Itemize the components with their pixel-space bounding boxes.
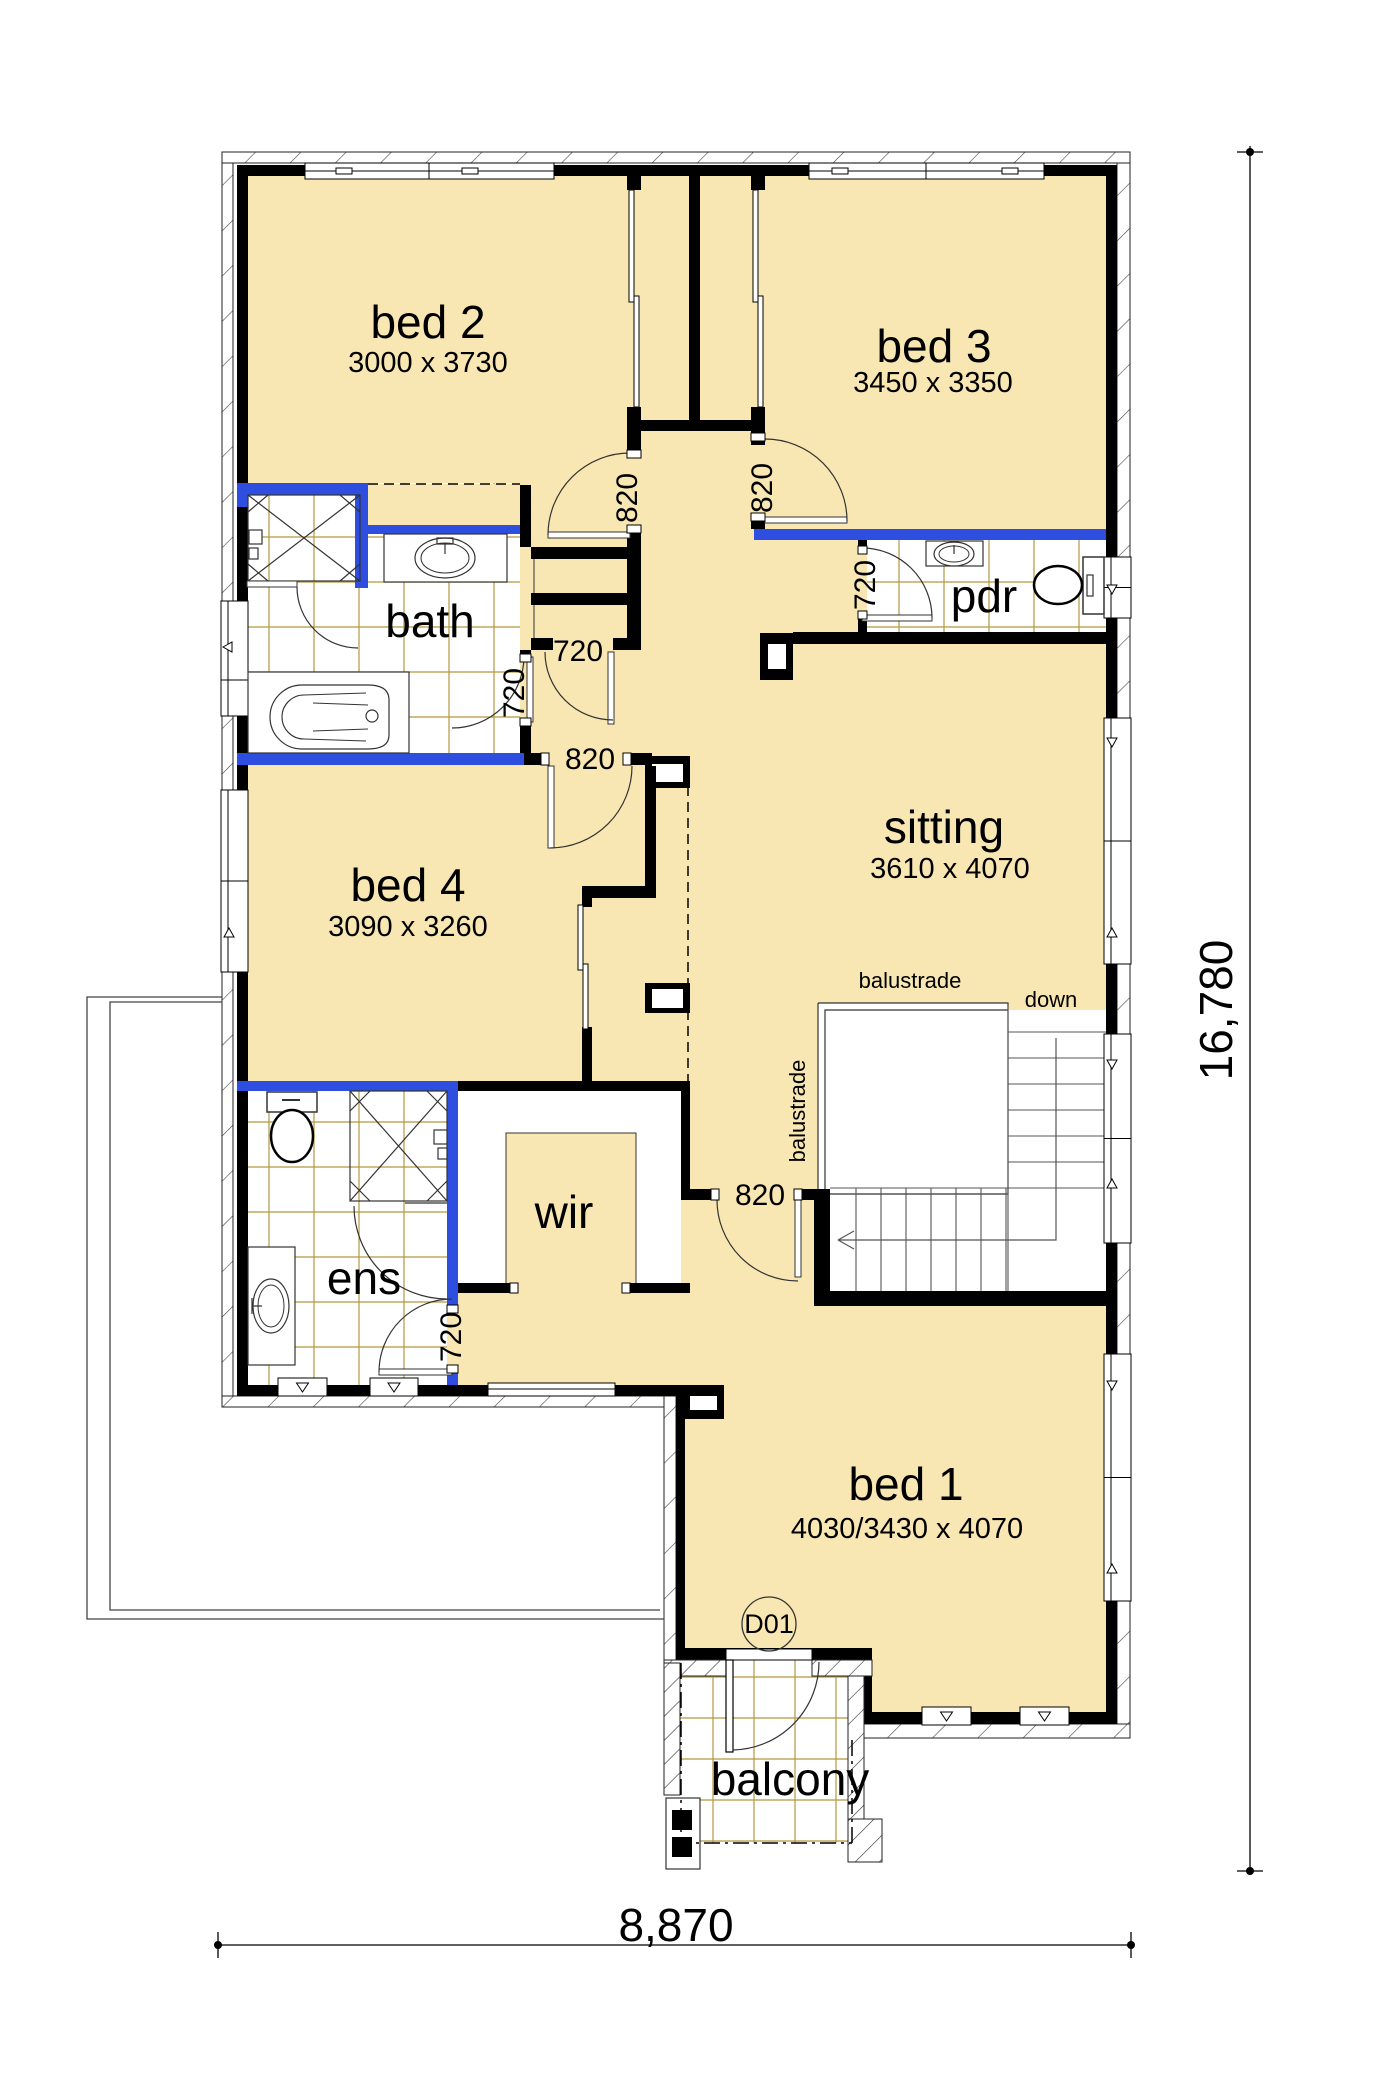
svg-text:bath: bath (385, 595, 475, 647)
svg-text:down: down (1025, 987, 1078, 1012)
svg-text:16,780: 16,780 (1190, 940, 1242, 1081)
svg-text:wir: wir (534, 1186, 594, 1238)
svg-text:bed 1: bed 1 (848, 1458, 963, 1510)
svg-text:3610 x 4070: 3610 x 4070 (870, 853, 1030, 885)
svg-text:balcony: balcony (711, 1753, 870, 1805)
svg-text:bed 3: bed 3 (876, 320, 991, 372)
svg-text:3000 x 3730: 3000 x 3730 (348, 347, 508, 379)
svg-text:balustrade: balustrade (785, 1060, 810, 1163)
svg-text:D01: D01 (744, 1609, 794, 1639)
svg-text:820: 820 (735, 1179, 785, 1212)
svg-text:4030/3430 x 4070: 4030/3430 x 4070 (791, 1513, 1023, 1545)
svg-text:sitting: sitting (884, 801, 1004, 853)
svg-text:820: 820 (565, 743, 615, 776)
svg-text:bed 4: bed 4 (350, 859, 465, 911)
svg-text:720: 720 (553, 635, 603, 668)
svg-text:720: 720 (498, 668, 531, 718)
svg-text:balustrade: balustrade (859, 968, 962, 993)
svg-text:3450 x 3350: 3450 x 3350 (853, 367, 1013, 399)
svg-text:ens: ens (327, 1252, 401, 1304)
svg-text:720: 720 (435, 1312, 468, 1362)
svg-text:8,870: 8,870 (618, 1899, 733, 1951)
svg-text:820: 820 (746, 463, 779, 513)
svg-text:bed 2: bed 2 (370, 296, 485, 348)
svg-text:820: 820 (611, 473, 644, 523)
svg-text:720: 720 (849, 560, 882, 610)
svg-text:3090 x 3260: 3090 x 3260 (328, 911, 488, 943)
svg-text:pdr: pdr (951, 570, 1017, 622)
